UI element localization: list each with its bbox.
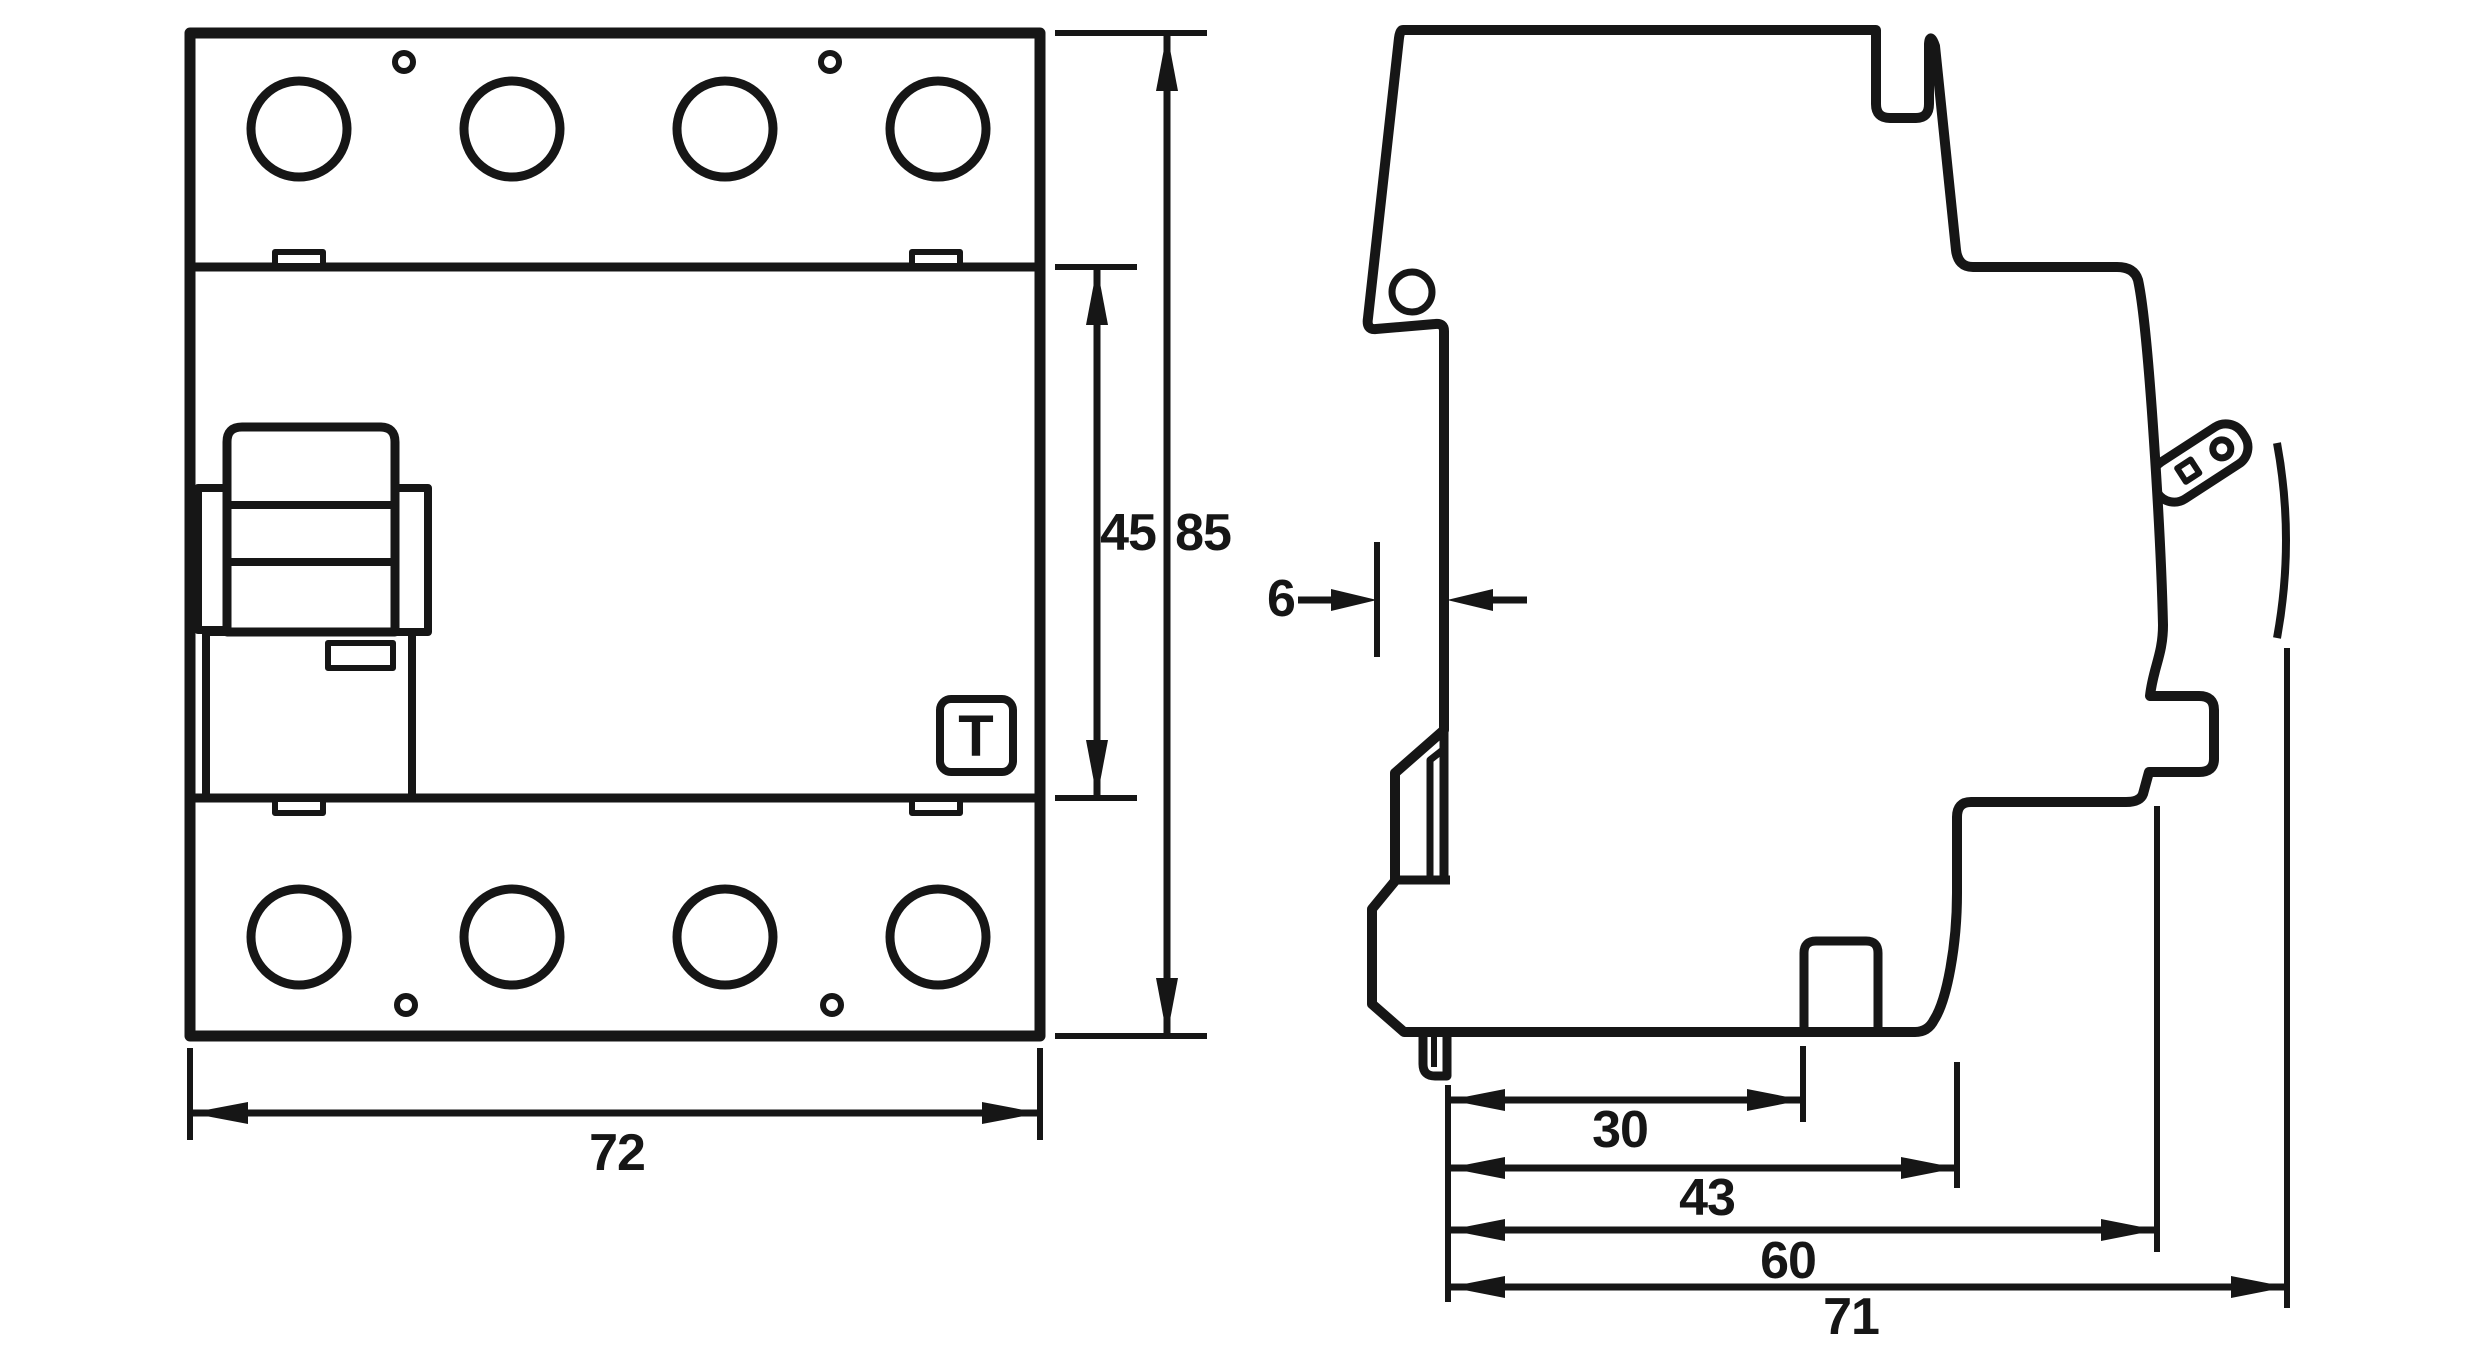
drawing-page: T 72 45 85 — [0, 0, 2480, 1351]
dim-label-72: 72 — [589, 1124, 645, 1182]
arrowhead — [1156, 33, 1178, 91]
terminal-hole — [677, 81, 773, 177]
test-button: T — [940, 699, 1013, 772]
small-hole — [397, 996, 415, 1014]
arrowhead — [1449, 1089, 1505, 1111]
lever-swing-arc — [2277, 443, 2286, 638]
arrowhead — [1331, 589, 1377, 611]
arrowhead — [1449, 1219, 1505, 1241]
arrowhead — [2231, 1276, 2287, 1298]
terminal-hole — [251, 81, 347, 177]
label-field — [206, 632, 412, 798]
small-hole — [821, 53, 839, 71]
dim-label-45: 45 — [1100, 504, 1156, 562]
arrowhead — [1086, 740, 1108, 798]
dim-label-6: 6 — [1267, 570, 1295, 628]
small-hole — [395, 53, 413, 71]
front-view: T 72 45 85 — [190, 33, 1231, 1182]
dim-front-section-height: 45 — [1055, 267, 1156, 798]
terminal-hole — [251, 889, 347, 985]
arrowhead — [982, 1102, 1040, 1124]
arrowhead — [1747, 1089, 1803, 1111]
arrowhead — [1449, 1276, 1505, 1298]
dim-front-width: 72 — [190, 1048, 1040, 1182]
arrowhead — [1086, 267, 1108, 325]
dim-label-30: 30 — [1592, 1101, 1648, 1159]
terminal-hole — [464, 81, 560, 177]
arrowhead — [190, 1102, 248, 1124]
terminal-hole — [890, 889, 986, 985]
arrowhead — [2101, 1219, 2157, 1241]
arrowhead — [1449, 1157, 1505, 1179]
dim-label-71: 71 — [1823, 1288, 1879, 1346]
terminal-hole — [890, 81, 986, 177]
clip-tab — [912, 252, 960, 266]
terminal-hole — [464, 889, 560, 985]
side-housing-outline — [1368, 30, 2214, 1032]
arrowhead — [1156, 978, 1178, 1036]
terminal-hole — [677, 889, 773, 985]
test-button-label: T — [958, 704, 993, 769]
toggle-handle — [227, 427, 395, 632]
dim-label-85: 85 — [1175, 504, 1231, 562]
dim-side-claw-to-guide: 30 — [1449, 1046, 1803, 1159]
toggle-frame-right — [395, 488, 428, 632]
label-window — [328, 643, 393, 668]
dim-label-43: 43 — [1679, 1169, 1735, 1227]
dimension-drawing: T 72 45 85 — [0, 0, 2480, 1351]
small-hole — [823, 996, 841, 1014]
toggle-switch — [198, 427, 428, 798]
clip-tab — [275, 252, 323, 266]
arrowhead — [1901, 1157, 1957, 1179]
side-view: 6 30 43 60 — [1267, 30, 2287, 1346]
dim-side-body-depth: 43 — [1449, 1062, 1957, 1227]
dim-label-60: 60 — [1760, 1232, 1816, 1290]
clip-tab — [912, 799, 960, 813]
